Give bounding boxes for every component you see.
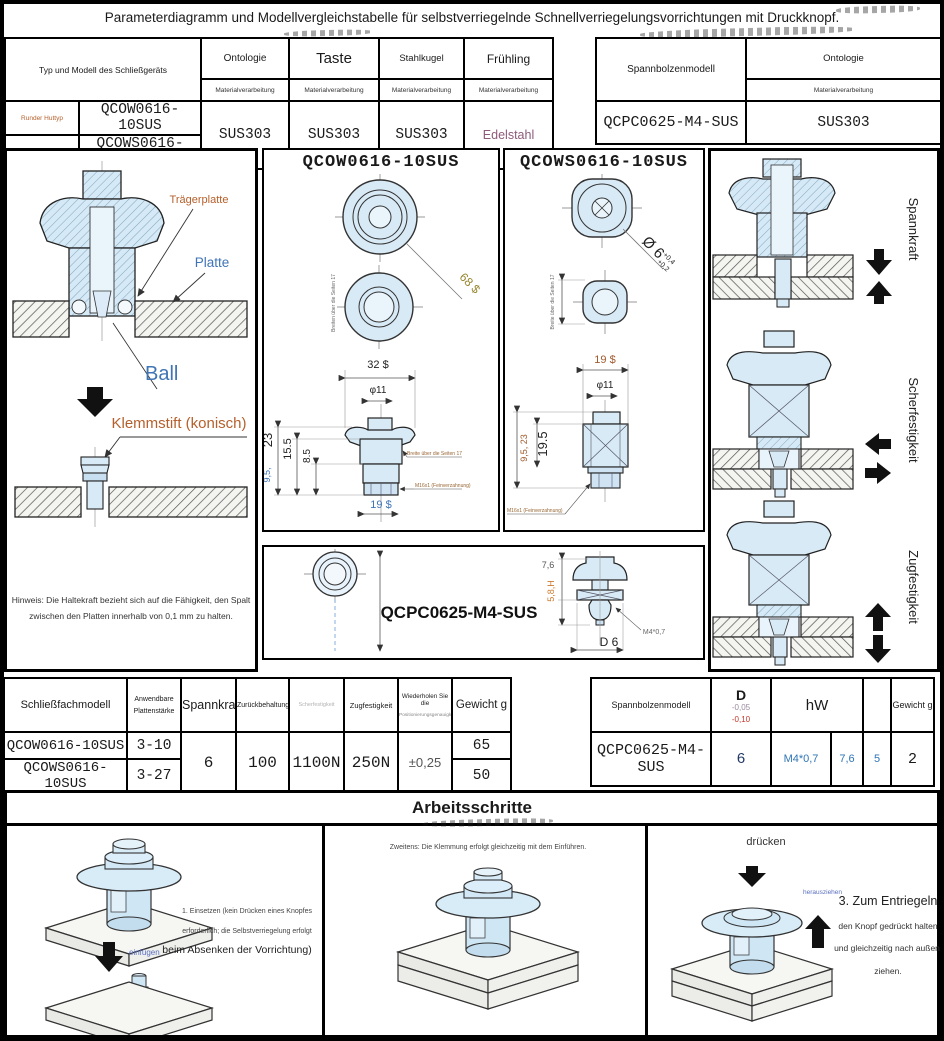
qcows-dim-95-23: 9,5, 23 [519,434,529,462]
qcpc-drawing: QCPC0625-M4-SUS 7,6 5,8,H M4*0,7 D 6 [264,547,703,658]
step3-text-line1: 3. Zum Entriegeln [833,894,943,908]
qcow-dim-19: 19 $ [370,499,391,511]
sub-header: Materialverarbeitung [289,79,379,101]
ball-label: Ball [145,363,178,385]
spec-weight: 50 [452,759,511,793]
datasheet-page: Parameterdiagramm und Modellvergleichsta… [0,0,944,1041]
scherfestigkeit-diagram [713,331,891,497]
step1-plate-with-stud [46,974,212,1036]
spec-h-shear: Scherfestigkeit [289,678,344,732]
qcpc-dim-76: 7,6 [542,560,555,570]
spec-spannkraft: 6 [181,732,236,793]
col-header-ontologie: Ontologie [746,38,941,79]
qcows-drawing-box: QCOWS0616-10SUS Ø 6+0,4+0,2 [503,148,705,532]
corner-header: Typ und Modell des Schließgeräts [5,38,201,101]
qcpc-side-view: 7,6 5,8,H M4*0,7 D 6 [542,551,665,650]
bolt-d: 6 [711,732,771,786]
spec-retention: 100 [236,732,289,793]
spec-table: Schließfachmodell AnwendbarePlattenstärk… [3,677,512,794]
forces-drawing: Spannkraft Scherfestigkeit [711,151,937,669]
model-code: QCPC0625-M4-SUS [596,101,746,144]
spec-h-tensile: Zugfestigkeit [344,678,398,732]
qcows-side-view: 19 $ φ11 [507,354,628,514]
qcow-drawing-box: QCOW0616-10SUS 68 $ Breiten über die Sei… [262,148,500,532]
bolt-h-empty [863,678,891,732]
qcow-title: QCOW0616-10SUS [264,153,498,172]
bolt-weight: 2 [891,732,934,786]
corner-header: Spannbolzenmodell [596,38,746,101]
qcows-title: QCOWS0616-10SUS [505,153,703,172]
qcow-dim-23: 23 [264,433,275,447]
note-line1: Hinweis: Die Haltekraft bezieht sich auf… [12,595,251,605]
bolt-model: QCPC0625-M4-SUS [591,732,711,786]
step1-text-line2: erforderlich; die Selbstverriegelung erf… [172,928,322,935]
spec-thickness: 3-10 [127,732,181,759]
bolt-h-d: D -0,05 -0,10 [711,678,771,732]
step2-clamped-assembly [398,868,578,1009]
qcow-across-top: Breiten über die Seiten 17 [331,274,337,332]
qcows-dim-11: φ11 [597,380,614,391]
step3-text-line4: ziehen. [829,966,944,976]
qcows-dim-195: 19.5 [535,431,550,456]
qcows-dim-19: 19 $ [594,354,615,366]
qcpc-thread-label: M4*0,7 [643,629,665,636]
spec-repeat: ±0,25 [398,732,452,793]
step2-panel: Zweitens: Die Klemmung erfolgt gleichzei… [328,826,648,1035]
down-arrow-icon [77,387,113,417]
spec-h-model: Schließfachmodell [4,678,127,732]
spec-model: QCOW0616-10SUS [4,732,127,759]
pin-drawing: Klemmstift (konisch) [15,415,247,527]
press-arrow-icon [738,866,766,887]
sub-header: Materialverarbeitung [746,79,941,101]
qcow-across-side: Breite über die Seiten 17 [407,451,462,457]
model-code: QCOW0616-10SUS [79,101,201,135]
bolt-thread: M4*0,7 [771,732,831,786]
step1-arrow-label: einfügen [129,948,160,957]
bolt-h-weight: Gewicht g [891,678,934,732]
step1-panel: einfügen 1. Einsetzen (kein Drücken eine… [7,826,325,1035]
spec-h-weight: Gewicht g [452,678,511,732]
spec-tensile: 250N [344,732,398,793]
qcows-dim-d6: Ø 6+0,4+0,2 [638,233,678,273]
step3-pressed-assembly [672,908,832,1021]
qcow-thread-label: M16x1 (Feinverzahnung) [415,483,471,489]
qcow-dim-68: 68 $ [457,270,484,297]
qcpc-dim-d6: D 6 [600,635,619,649]
traegerplatte-label: Trägerplatte [170,194,229,206]
qcows-top-view [562,174,663,269]
qcow-side-view: 32 $ φ11 [264,359,471,522]
fastener-cross-section [13,161,247,341]
type-label: Runder Huttyp [5,101,79,135]
sub-header: Materialverarbeitung [464,79,553,101]
cross-section-panel: Trägerplatte Platte Ball Klemmstift (kon… [4,148,258,672]
qcows-across: Breite über die Seiten 17 [550,274,556,329]
qcpc-dim-58: 5,8,H [546,580,556,602]
steps-section: Arbeitsschritte [4,790,940,1038]
qcows-bottom-view [558,270,637,334]
qcpc-drawing-box: QCPC0625-M4-SUS 7,6 5,8,H M4*0,7 D 6 [262,545,705,660]
bolt-h-model: Spannbolzenmodell [591,678,711,732]
cross-section-drawing: Trägerplatte Platte Ball Klemmstift (kon… [7,151,255,669]
klemmstift-label: Klemmstift (konisch) [111,415,246,432]
qcow-dim-11: φ11 [370,385,387,396]
spannkraft-diagram [713,159,892,307]
sub-header: Materialverarbeitung [201,79,289,101]
step1-text-line1: 1. Einsetzen (kein Drücken eines Knopfes [172,908,322,915]
qcow-dim-32: 32 $ [367,359,388,371]
step3-drawing [661,851,851,1035]
step1-text-line3: beim Absenken der Vorrichtung) [157,944,317,956]
qcpc-top-view [304,549,380,651]
spec-thickness: 3-27 [127,759,181,793]
step3-panel: drücken herausziehen [651,826,943,1035]
material-value: SUS303 [746,101,941,144]
step3-text-line3: und gleichzeitig nach außen [827,943,944,953]
zugfestigkeit-diagram [713,501,891,665]
spec-h-thickness: AnwendbarePlattenstärke [127,678,181,732]
spec-weight: 65 [452,732,511,759]
bolt-spec-table: Spannbolzenmodell D -0,05 -0,10 hW Gewic… [590,677,935,787]
spec-h-repeat: Wiederholen Sie diePositionierungsgenaui… [398,678,452,732]
forces-panel: Spannkraft Scherfestigkeit [708,148,940,672]
bolt-h-hw: hW [771,678,863,732]
col-header-ontologie: Ontologie [201,38,289,79]
spec-shear: 1100N [289,732,344,793]
qcpc-title: QCPC0625-M4-SUS [381,603,538,622]
spec-h-retention: Zurückbehaltung [236,678,289,732]
qcow-dim-85: 8.5 [302,449,313,463]
scherfestigkeit-label: Scherfestigkeit [906,377,921,463]
spec-h-spannkraft: Spannkraft [181,678,236,732]
col-header-stahlkugel: Stahlkugel [379,38,464,79]
bolt-model-table: Spannbolzenmodell Ontologie Materialvera… [595,37,942,145]
zugfestigkeit-label: Zugfestigkeit [906,550,921,624]
spannkraft-label: Spannkraft [906,198,921,261]
bolt-w: 5 [863,732,891,786]
note-line2: zwischen den Platten innerhalb von 0,1 m… [29,611,233,621]
qcow-bottom-view [337,265,423,349]
col-header-fruehling: Frühling [464,38,553,79]
qcows-thread-label: M16x1 (Feinverzahnung) [507,508,563,514]
bolt-h: 7,6 [831,732,863,786]
spec-model: QCOWS0616-10SUS [4,759,127,793]
qcow-drawing: 68 $ Breiten über die Seiten 17 32 $ φ11 [264,172,498,530]
sub-header: Materialverarbeitung [379,79,464,101]
step3-text-line2: den Knopf gedrückt halten [829,921,944,931]
col-header-taste: Taste [289,38,379,79]
qcow-dim-155: 15.5 [282,438,294,459]
qcows-drawing: Ø 6+0,4+0,2 Breite über die Seiten 17 19… [505,172,703,530]
step2-text: Zweitens: Die Klemmung erfolgt gleichzei… [328,844,648,851]
platte-label: Platte [195,255,230,270]
step3-press-label: drücken [706,836,826,848]
qcow-dim-95: 9,5, [264,467,272,482]
step2-drawing [373,856,603,1036]
